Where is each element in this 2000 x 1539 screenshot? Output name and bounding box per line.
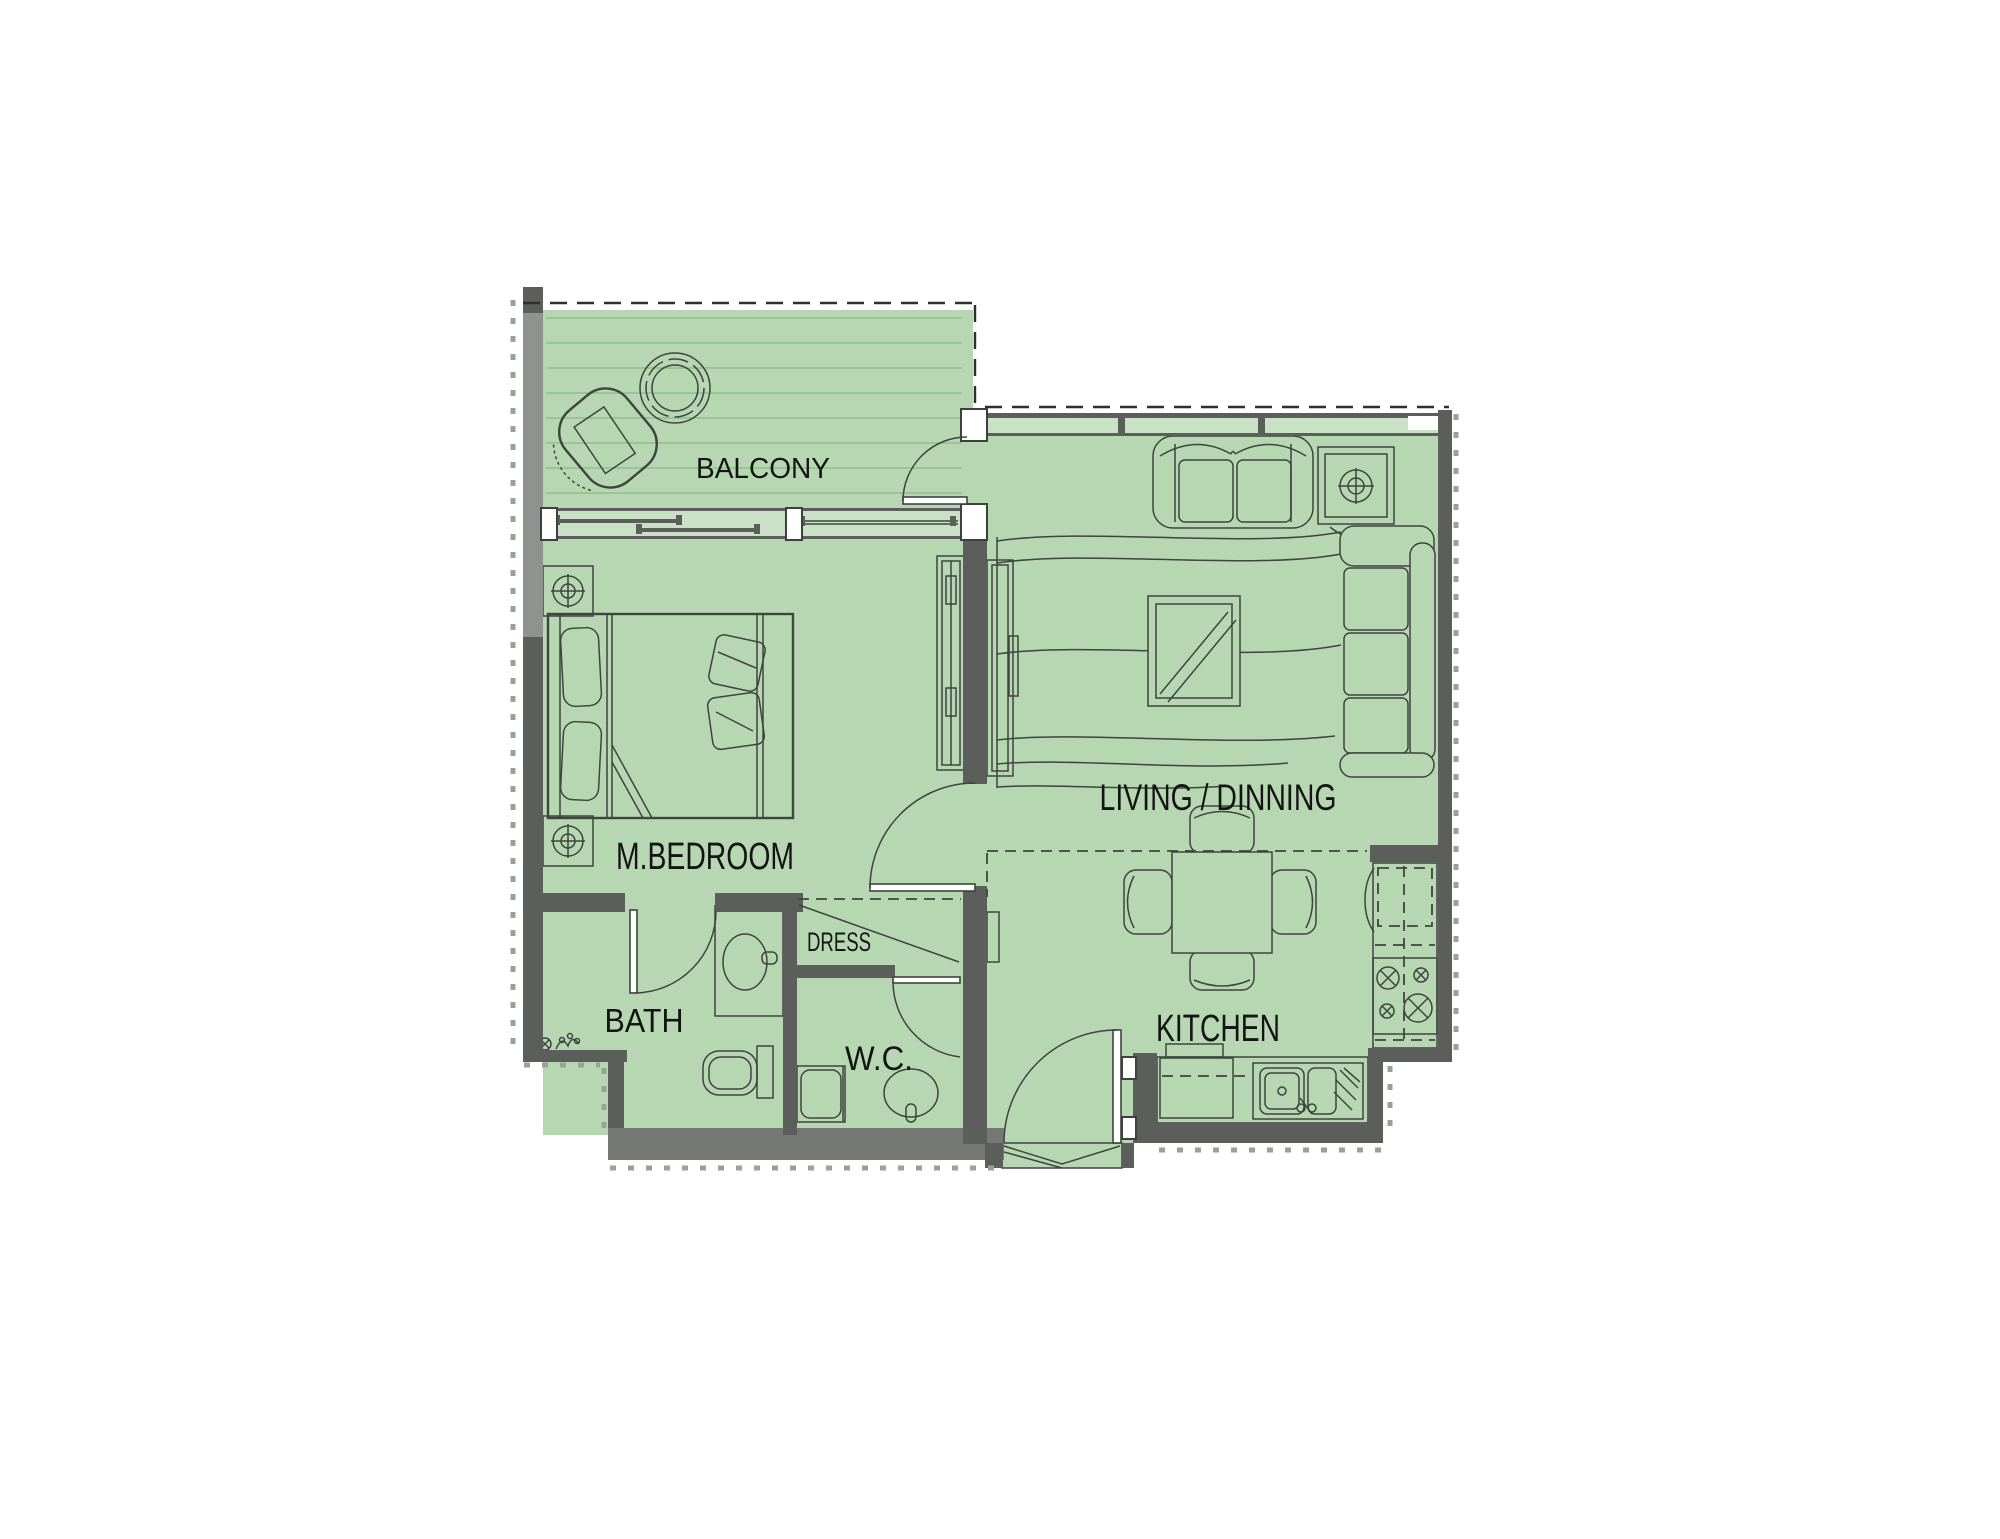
sliding-window-rail bbox=[558, 519, 680, 523]
room-label-dress: DRESS bbox=[807, 927, 871, 957]
wall-kitchen-bottom bbox=[1157, 1123, 1383, 1143]
side-table-lamp bbox=[1318, 447, 1394, 538]
window-mullion bbox=[1118, 414, 1125, 435]
window-mullion bbox=[1258, 414, 1265, 435]
wall-kitchen-top bbox=[1370, 845, 1450, 862]
room-label-wc: W.C. bbox=[845, 1040, 913, 1078]
dining-table bbox=[1172, 852, 1272, 953]
bedroom-window-band bbox=[543, 508, 963, 539]
wall-bath-wc bbox=[783, 898, 797, 1135]
wall-bedroom-living bbox=[963, 538, 987, 784]
wall-left bbox=[523, 637, 543, 1062]
wall-living-top bbox=[985, 413, 1438, 418]
wall-wc-hall bbox=[963, 886, 987, 1144]
sliding-window-rail bbox=[640, 528, 758, 532]
wall-balcony-left bbox=[523, 287, 543, 637]
room-label-bath: BATH bbox=[605, 1002, 684, 1039]
room-label-m-bedroom: M.BEDROOM bbox=[616, 836, 794, 878]
coffee-table bbox=[1148, 596, 1240, 706]
room-label-living-dinning: LIVING / DINNING bbox=[1100, 777, 1337, 818]
wall-right bbox=[1438, 410, 1452, 1062]
floor-plan-drawing: BALCONY M.BEDROOM LIVING / DINNING DRESS… bbox=[0, 0, 2000, 1539]
kitchen-floor-strip bbox=[1157, 1050, 1383, 1123]
room-label-kitchen: KITCHEN bbox=[1156, 1008, 1280, 1050]
sofa-two-seat bbox=[1153, 436, 1313, 528]
wall-bottom-band bbox=[608, 1128, 1004, 1160]
floor-plan: BALCONY M.BEDROOM LIVING / DINNING DRESS… bbox=[0, 0, 2000, 1539]
wall-dress-bottom bbox=[795, 965, 895, 978]
room-label-balcony: BALCONY bbox=[696, 453, 830, 485]
wall-bath-top bbox=[523, 893, 625, 912]
